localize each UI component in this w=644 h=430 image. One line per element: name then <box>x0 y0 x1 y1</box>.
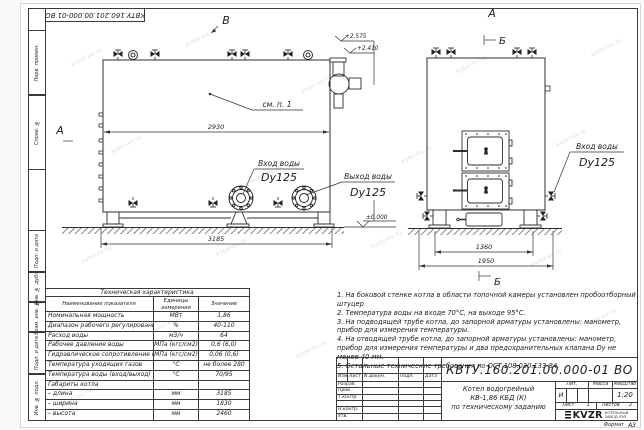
change-header-list: Лист <box>348 374 363 382</box>
table-row: – длинамм3185 <box>45 390 249 400</box>
row-name: Габариты котла <box>45 381 154 390</box>
outlet-dy: Dy125 <box>350 186 386 199</box>
ground-hatch-right <box>408 228 562 235</box>
row-units: мм <box>154 390 199 399</box>
lit-header: Лит. <box>556 382 589 389</box>
kvzr-logo-mark <box>565 411 571 419</box>
inlet-right-label: Вход воды <box>576 142 618 151</box>
row-units: МПа (кгс/см2) <box>154 341 199 350</box>
table-row: – ширинамм1830 <box>45 400 249 410</box>
row-units: МПа (кгс/см2) <box>154 351 199 360</box>
side-wall-stubs <box>99 113 103 202</box>
change-header-podp: Подп. <box>399 374 424 382</box>
format-word: Формат <box>604 422 624 428</box>
row-name: Рабочее давление воды <box>45 341 154 350</box>
mass-value <box>589 389 613 403</box>
doc-number: КВТУ.160.201.00.000-01 ВО <box>442 358 637 382</box>
ash-box <box>457 213 502 226</box>
row-units: мм <box>154 400 199 409</box>
change-header-izm: Изм. <box>337 374 348 382</box>
elevation-2575: +2.575 <box>345 34 367 40</box>
note-item: 2. Температура воды на входе 70°С, на вы… <box>337 309 637 318</box>
row-name: Температура уходящих газов <box>45 361 154 370</box>
dim-3185: 3185 <box>208 235 225 243</box>
kvzr-logo-text: KVZR <box>573 410 603 420</box>
row-units: м3/ч <box>154 332 199 341</box>
sheet-label: Лист <box>562 403 574 409</box>
lit-value: И <box>556 389 567 403</box>
row-units: °С <box>154 361 199 370</box>
table-row: Температура уходящих газов°Сне более 280 <box>45 361 249 371</box>
row-name: Диапазон рабочего регулирования <box>45 322 154 331</box>
boiler-side-view <box>99 50 361 227</box>
sign-row-utv: Утв. <box>337 414 363 420</box>
water-outlet-flange <box>292 186 316 210</box>
change-header-ndoc: N докум. <box>363 374 399 382</box>
note-item: 3. На подводящей трубе котла, до запорно… <box>337 318 637 336</box>
row-value: 3185 <box>199 390 249 399</box>
sheets-value: 2 <box>629 403 632 409</box>
row-value <box>199 381 249 390</box>
row-units: °С <box>154 371 199 380</box>
inlet-right-dy: Dy125 <box>579 156 615 169</box>
table-row: Расход водым3/ч64 <box>45 332 249 342</box>
view-label-v: В <box>222 14 230 27</box>
table-row: Гидравлическое сопротивление котлаМПа (к… <box>45 351 249 361</box>
table-row: Номинальная мощностьМВт1,86 <box>45 312 249 322</box>
mass-header: Масса <box>589 382 613 389</box>
elevation-2410: +2.410 <box>357 46 379 52</box>
section-label-b-top: Б <box>499 36 506 47</box>
section-label-b-bottom: Б <box>494 277 501 288</box>
table-row: Габариты котла <box>45 381 249 391</box>
row-name: – ширина <box>45 400 154 409</box>
row-name: – длина <box>45 390 154 399</box>
sheets-label: Листов <box>602 403 620 409</box>
change-header-data: Дата <box>424 374 442 382</box>
format-label: Формат А3 <box>578 421 636 429</box>
kvzr-caption-line2: ЗАВОД РЭП <box>605 415 629 419</box>
dim-2930: 2930 <box>208 123 225 131</box>
boiler-front-view <box>417 48 555 228</box>
row-units: мм <box>154 410 199 420</box>
manufacturer-logo: KVZR КОТЕЛЬНЫЙ ЗАВОД РЭП <box>556 410 637 420</box>
row-name: Номинальная мощность <box>45 312 154 321</box>
row-value: 64 <box>199 332 249 341</box>
row-units <box>154 381 199 390</box>
row-name: Гидравлическое сопротивление котла <box>45 351 154 360</box>
kvzr-logo-caption: КОТЕЛЬНЫЙ ЗАВОД РЭП <box>605 411 629 419</box>
view-label-a-right: А <box>487 7 496 20</box>
tech-characteristics-table: Техническая характеристика Наименование … <box>45 288 250 421</box>
sheet-cell: Лист1 <box>556 403 597 410</box>
dim-1360: 1360 <box>476 243 493 251</box>
sheets-cell: Листов2 <box>597 403 637 410</box>
format-value: А3 <box>628 422 636 429</box>
dim-1950: 1950 <box>478 257 495 265</box>
sheet-value: 1 <box>587 403 590 409</box>
table-row: – высотамм2460 <box>45 410 249 420</box>
table-row: Температура воды (вход/выход)°С70/95 <box>45 371 249 381</box>
title-block: Изм. Лист N докум. Подп. Дата Разраб. Пр… <box>336 357 638 421</box>
row-value: 1,86 <box>199 312 249 321</box>
ground-hatch-left <box>62 227 344 234</box>
row-value: 2460 <box>199 410 249 420</box>
lower-door <box>453 173 512 209</box>
inlet-left-dy: Dy125 <box>261 171 297 184</box>
section-label-a-left: А <box>55 124 64 137</box>
tech-table-header: Наименование показателя Единицы измерени… <box>45 297 249 312</box>
supports <box>103 212 334 227</box>
note-item: 1. На боковой стенке котла в области топ… <box>337 291 637 309</box>
row-name: – высота <box>45 410 154 420</box>
upper-door <box>453 131 512 171</box>
row-name: Температура воды (вход/выход) <box>45 371 154 380</box>
table-row: Диапазон рабочего регулирования%40-110 <box>45 322 249 332</box>
product-name: Котел водогрейный КВ-1,86 КБД (К) по тех… <box>442 382 556 420</box>
header-value: Значение <box>199 297 249 311</box>
outlet-label: Выход воды <box>344 172 392 181</box>
flue-duct <box>329 58 361 108</box>
row-value: 40-110 <box>199 322 249 331</box>
product-name-line2: КВ-1,86 КБД (К) <box>442 394 555 403</box>
scale-header: Масштаб <box>613 382 637 389</box>
inlet-left-label: Вход воды <box>258 159 300 168</box>
header-units: Единицы измерения <box>154 297 199 311</box>
tech-table-title: Техническая характеристика <box>45 289 249 297</box>
row-value: 0,6 (6,0) <box>199 341 249 350</box>
row-value: 0,06 (0,6) <box>199 351 249 360</box>
row-value: 70/95 <box>199 371 249 380</box>
table-row: Рабочее давление водыМПа (кгс/см2)0,6 (6… <box>45 341 249 351</box>
scale-value: 1:20 <box>613 389 637 403</box>
callout-see-item-1: см. п. 1 <box>263 100 292 109</box>
product-name-line3: по техническому заданию <box>442 403 555 412</box>
row-units: МВт <box>154 312 199 321</box>
row-units: % <box>154 322 199 331</box>
row-value: не более 280 <box>199 361 249 370</box>
elevation-zero: ±0.000 <box>366 215 388 221</box>
row-value: 1830 <box>199 400 249 409</box>
product-name-line1: Котел водогрейный <box>442 385 555 394</box>
dimensions-and-leaders <box>63 26 624 281</box>
row-name: Расход воды <box>45 332 154 341</box>
header-name: Наименование показателя <box>45 297 154 311</box>
drawing-texts: В А А Б Б см. п. 1 2930 3185 1360 1950 +… <box>55 7 618 288</box>
water-inlet-flange <box>229 186 253 210</box>
